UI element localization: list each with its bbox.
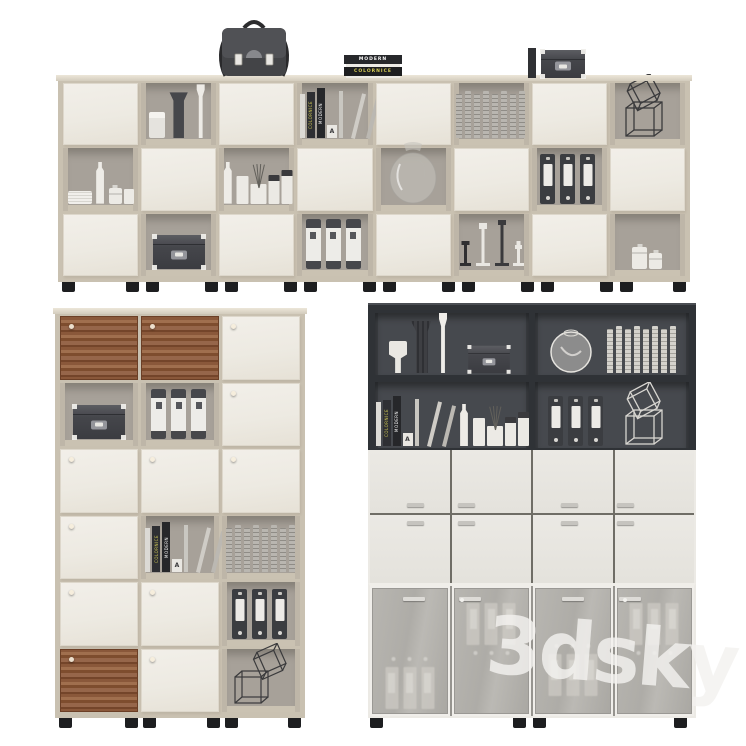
- white-cylinder: [236, 176, 248, 204]
- thin-book: [510, 94, 516, 138]
- corner-protector: [152, 234, 157, 239]
- jars-small: [632, 247, 662, 269]
- glass-vase: [386, 140, 440, 204]
- thin-book: [271, 525, 277, 572]
- cabinet-foot: [284, 282, 297, 292]
- cabinet-foot: [304, 282, 317, 292]
- thin-book: [280, 528, 286, 572]
- glass-door: [615, 586, 695, 716]
- glass-door: [370, 586, 450, 716]
- white-jar: [649, 253, 662, 269]
- binder: [580, 154, 595, 204]
- corner-protector: [72, 435, 77, 440]
- wood-cabinet-door: [60, 649, 138, 713]
- open-shelf-cell: [141, 383, 219, 447]
- open-shelf-cell: [63, 148, 138, 210]
- box-handle: [555, 62, 571, 71]
- tall-cabinet-unit: COLORNICEMODERNA: [55, 308, 305, 728]
- open-shelf-cell: [219, 148, 294, 210]
- bookend: A: [403, 433, 413, 446]
- box-top: [528, 48, 585, 78]
- corner-protector: [507, 370, 511, 374]
- standing-book: [528, 48, 536, 78]
- thin-book: [244, 528, 250, 572]
- open-shelf-cell: [610, 83, 685, 145]
- open-shelf-cell: COLORNICEMODERNA: [297, 83, 372, 145]
- cabinet-door: [533, 450, 613, 513]
- binder-rings: [636, 651, 672, 655]
- cabinet-foot: [126, 282, 139, 292]
- storage-box: [468, 346, 510, 373]
- book-spine: MODERN: [344, 55, 402, 64]
- door-handle: [403, 597, 425, 601]
- cabinet-carcass: COLORNICEMODERNA: [55, 314, 305, 718]
- cabinet-door: [141, 148, 216, 210]
- leaning-book: [196, 527, 211, 573]
- book: [415, 399, 419, 446]
- cabinet-carcass: COLORNICEMODERNA: [58, 81, 690, 282]
- sideboard-unit: COLORNICEMODERNAMODERNCOLORNICE: [58, 75, 690, 292]
- cabinet-door: [297, 148, 372, 210]
- cabinet-door: [219, 214, 294, 276]
- open-shelf-cell: [141, 214, 216, 276]
- binders-white: [306, 219, 364, 269]
- white-bottle: [94, 162, 107, 204]
- door-handle: [561, 521, 578, 525]
- hutch-shelf-cell: COLORNICEMODERNA: [375, 382, 529, 448]
- binder: [560, 154, 575, 204]
- book-spine: MODERN: [393, 396, 401, 446]
- thin-book: [235, 525, 241, 572]
- binder: [588, 396, 603, 446]
- white-binder: [171, 389, 186, 439]
- thin-book: [465, 91, 471, 138]
- thin-book: [625, 329, 631, 373]
- vases3d: [389, 313, 451, 373]
- diffuser-set: [221, 162, 292, 204]
- book-pages: [346, 76, 401, 79]
- top-board: [53, 308, 307, 314]
- corner-protector: [581, 74, 586, 79]
- book-spine: COLORNICE: [383, 400, 391, 446]
- binder-rings: [555, 644, 591, 648]
- capped-bottle: [281, 170, 292, 204]
- cabinet-door: [533, 515, 613, 583]
- cabinet-door: [610, 148, 685, 210]
- white-cylinder: [124, 189, 134, 204]
- cabinet-door: [141, 649, 219, 713]
- wood-cabinet-door: [141, 316, 219, 380]
- box-handle: [91, 420, 107, 429]
- glass-door: [452, 586, 532, 716]
- books-lean: COLORNICEMODERNA: [300, 88, 370, 138]
- cabinet-foot: [225, 718, 238, 728]
- thin-book: [262, 528, 268, 572]
- thin-book: [226, 528, 232, 572]
- thin-book: [253, 525, 259, 572]
- binder-silhouette: [584, 654, 597, 696]
- cabinet-foot: [146, 282, 159, 292]
- corner-protector: [121, 404, 126, 409]
- white-binder: [326, 219, 341, 269]
- binders-dark: [540, 154, 598, 204]
- cabinet-door: [222, 316, 300, 380]
- cabinet-foot: [674, 718, 687, 728]
- cabinet-foot: [521, 282, 534, 292]
- white-binder: [191, 389, 206, 439]
- cabinet-foot: [513, 718, 526, 728]
- cabinet-foot: [59, 718, 72, 728]
- books-lean-d: COLORNICEMODERNA: [376, 396, 446, 446]
- white-jar: [632, 247, 647, 269]
- cabinet-door: [376, 214, 451, 276]
- plate-stack: [68, 191, 92, 204]
- hutch-shelf-cell: [535, 313, 689, 375]
- binder-rings: [473, 651, 509, 655]
- dark-vase: [167, 92, 191, 138]
- thin-book: [501, 91, 507, 138]
- cabinet-foot: [673, 282, 686, 292]
- book: [145, 528, 150, 572]
- cabinet-door: [60, 582, 138, 646]
- briefcase: [210, 14, 298, 78]
- thin-book: [634, 326, 640, 373]
- binders-behind-glass: [467, 603, 516, 661]
- book-stack: MODERNCOLORNICE: [344, 55, 402, 78]
- cabinet-door: [60, 449, 138, 513]
- binder-silhouette: [403, 667, 416, 709]
- binders-dark: [548, 396, 606, 446]
- top-item-briefcase: [210, 14, 298, 78]
- thin-book: [670, 326, 676, 373]
- cabinet-foot: [383, 282, 396, 292]
- book: [339, 91, 343, 138]
- binder: [232, 589, 247, 639]
- white-set: [68, 162, 134, 204]
- bookend: A: [327, 125, 337, 138]
- hutch-shelf-cell: [375, 313, 529, 375]
- product-render-stage: COLORNICEMODERNAMODERNCOLORNICE COLORNIC…: [0, 0, 746, 746]
- white-bottle: [221, 162, 234, 204]
- corner-protector: [581, 49, 586, 54]
- hinge-dot: [460, 598, 464, 602]
- binder: [252, 589, 267, 639]
- book-spine: MODERN: [317, 88, 325, 138]
- corner-protector: [121, 435, 126, 440]
- binder-silhouette: [548, 654, 561, 696]
- binder-silhouette: [566, 654, 579, 696]
- door-handle: [407, 521, 424, 525]
- capped-bottle: [518, 412, 529, 446]
- thin-book: [519, 91, 525, 138]
- corner-protector: [540, 49, 545, 54]
- open-shelf-cell: [610, 214, 685, 276]
- binder-silhouette: [503, 603, 516, 645]
- door-section: [368, 450, 696, 583]
- books-lean: COLORNICEMODERNA: [145, 522, 215, 572]
- binder-silhouette: [385, 667, 398, 709]
- binder: [568, 396, 583, 446]
- white-binder: [151, 389, 166, 439]
- book-row-light: [607, 326, 677, 373]
- leaning-book: [427, 401, 442, 447]
- thin-book: [661, 329, 667, 373]
- binder-silhouette: [666, 603, 679, 645]
- cabinet-door: [452, 515, 532, 583]
- cabinet-foot: [600, 282, 613, 292]
- corner-protector: [201, 234, 206, 239]
- capped-bottle: [268, 175, 279, 204]
- open-shelf-cell: [141, 83, 216, 145]
- corner-protector: [467, 370, 471, 374]
- cabinet-door: [532, 214, 607, 276]
- cabinet-door: [454, 148, 529, 210]
- top-item-box-top: [528, 48, 585, 78]
- storage-box: [541, 50, 585, 78]
- book: [184, 525, 188, 572]
- box-dark-sm: [463, 339, 515, 373]
- tall-vase: [193, 84, 209, 138]
- thin-book: [289, 525, 295, 572]
- binder-silhouette: [485, 603, 498, 645]
- corner-protector: [152, 265, 157, 270]
- book: [376, 402, 381, 446]
- binders-white: [151, 389, 209, 439]
- book: [300, 94, 305, 138]
- cabinet-door: [222, 383, 300, 447]
- tall-vase: [435, 313, 451, 373]
- book-row: [226, 525, 296, 572]
- top-item-book-stack: MODERNCOLORNICE: [344, 55, 402, 78]
- glass-door-section: [368, 583, 696, 718]
- box-handle: [483, 358, 496, 365]
- open-shelf-cell: [60, 383, 138, 447]
- thin-book: [643, 329, 649, 373]
- book-stack: MODERNCOLORNICE: [344, 55, 402, 78]
- sphere-vase: [547, 327, 595, 373]
- glass-door: [533, 586, 613, 716]
- white-bottle: [458, 404, 471, 446]
- white-binder: [346, 219, 361, 269]
- cabinet-foot: [143, 718, 156, 728]
- office-cabinet-unit: COLORNICEMODERNA: [368, 303, 696, 728]
- cabinet-foot: [288, 718, 301, 728]
- corner-protector: [201, 265, 206, 270]
- cabinet-foot: [533, 718, 546, 728]
- white-jar: [109, 188, 122, 204]
- cabinet-door: [615, 450, 695, 513]
- thin-book: [616, 326, 622, 373]
- cabinet-foot: [205, 282, 218, 292]
- binders-behind-glass: [548, 638, 597, 696]
- wire-cube-light: [618, 382, 676, 446]
- hinge-dot: [623, 598, 627, 602]
- binder: [540, 154, 555, 204]
- door-handle: [562, 597, 584, 601]
- thin-book: [492, 94, 498, 138]
- small-vase: [389, 341, 407, 373]
- leaning-book: [351, 94, 366, 140]
- open-hutch-section: COLORNICEMODERNA: [368, 303, 696, 450]
- cabinet-foot: [225, 282, 238, 292]
- door-handle: [458, 521, 475, 525]
- book-spine: MODERN: [162, 522, 170, 572]
- open-shelf-cell: [454, 214, 529, 276]
- cabinet-foot: [620, 282, 633, 292]
- binder-silhouette: [630, 603, 643, 645]
- cabinet-door: [376, 83, 451, 145]
- binder: [548, 396, 563, 446]
- cabinet-door: [60, 516, 138, 580]
- thin-book: [652, 326, 658, 373]
- leaning-book: [442, 405, 456, 447]
- cabinet-door: [63, 83, 138, 145]
- cabinet-door: [141, 582, 219, 646]
- open-shelf-cell: [222, 649, 300, 713]
- cabinet-door: [532, 83, 607, 145]
- open-shelf-cell: [376, 148, 451, 210]
- door-handle: [407, 503, 424, 507]
- box-handle: [171, 250, 187, 259]
- wire-cubes2: [229, 643, 293, 705]
- bookend: A: [172, 559, 182, 572]
- binder-silhouette: [467, 603, 480, 645]
- cabinet-door: [222, 449, 300, 513]
- cabinet-door: [452, 450, 532, 513]
- open-shelf-cell: [297, 214, 372, 276]
- door-handle: [617, 521, 634, 525]
- cabinet-foot: [462, 282, 475, 292]
- open-shelf-cell: [532, 148, 607, 210]
- cabinet-foot: [363, 282, 376, 292]
- thin-book: [474, 94, 480, 138]
- white-cylinder: [473, 418, 485, 446]
- cabinet-door: [219, 83, 294, 145]
- book-spine: COLORNICE: [152, 526, 160, 572]
- cabinet-door: [370, 450, 450, 513]
- cabinet-door: [63, 214, 138, 276]
- cabinet-foot: [541, 282, 554, 292]
- thin-book: [483, 91, 489, 138]
- small-vase: [149, 112, 165, 138]
- book-spine: COLORNICE: [307, 92, 315, 138]
- diffuser-set: [458, 404, 529, 446]
- candlesticks: [455, 215, 527, 269]
- door-handle: [561, 503, 578, 507]
- hutch-shelf-cell: [535, 382, 689, 448]
- vases3: [149, 84, 209, 138]
- wood-cabinet-door: [60, 316, 138, 380]
- storage-box: [153, 235, 205, 269]
- open-shelf-cell: [222, 582, 300, 646]
- cabinet-foot: [207, 718, 220, 728]
- thin-book: [607, 329, 613, 373]
- white-binder: [306, 219, 321, 269]
- box-dark: [73, 405, 125, 439]
- binder-silhouette: [648, 603, 661, 645]
- cabinet-door: [370, 515, 450, 583]
- wire-cube: [618, 74, 676, 138]
- door-handle: [617, 503, 634, 507]
- corner-protector: [72, 404, 77, 409]
- open-shelf-cell: COLORNICEMODERNA: [141, 516, 219, 580]
- box-dark: [153, 235, 205, 269]
- cabinet-foot: [370, 718, 383, 728]
- thin-book: [456, 94, 462, 138]
- binders-behind-glass: [385, 651, 434, 709]
- binders-dark: [232, 589, 290, 639]
- corner-protector: [507, 345, 511, 349]
- binder: [272, 589, 287, 639]
- dark-vase: [409, 321, 433, 373]
- binder-rings: [392, 657, 428, 661]
- book-row: [456, 91, 526, 138]
- door-handle: [458, 503, 475, 507]
- cabinet-foot: [442, 282, 455, 292]
- cabinet-door: [141, 449, 219, 513]
- diffuser-vase: [250, 184, 266, 204]
- storage-box: [73, 405, 125, 439]
- binders-behind-glass: [630, 603, 679, 661]
- cabinet-foot: [125, 718, 138, 728]
- open-shelf-cell: [454, 83, 529, 145]
- binder-silhouette: [421, 667, 434, 709]
- open-shelf-cell: [222, 516, 300, 580]
- corner-protector: [467, 345, 471, 349]
- cabinet-foot: [62, 282, 75, 292]
- capped-bottle: [505, 417, 516, 446]
- book-spine: COLORNICE: [344, 67, 402, 76]
- corner-protector: [540, 74, 545, 79]
- cabinet-door: [615, 515, 695, 583]
- diffuser-vase: [487, 426, 503, 446]
